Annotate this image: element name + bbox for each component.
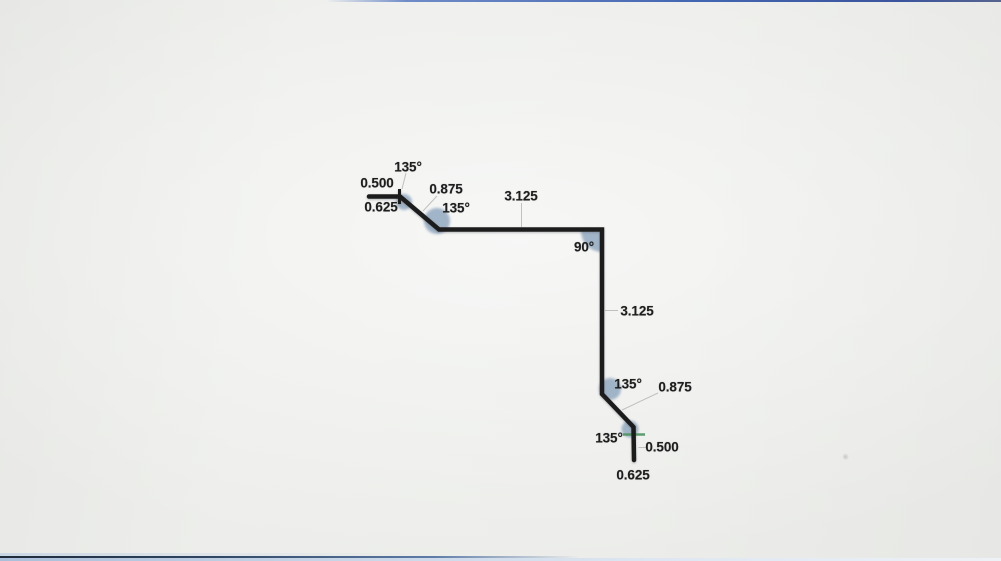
label-len-0500-start: 0.500 [360, 176, 393, 191]
screen-photo-canvas: 135° 0.500 0.875 0.625 135° 3.125 90° 3.… [0, 0, 1001, 561]
label-len-0875-top: 0.875 [429, 182, 462, 197]
leader-angle-135-a [402, 173, 406, 189]
profile-path-group [369, 189, 634, 460]
leader-len-0875-bottom [622, 393, 658, 410]
label-angle-135-d: 135° [595, 431, 623, 446]
label-len-0500-end: 0.500 [645, 440, 678, 455]
profile-drawing [0, 0, 1001, 561]
label-angle-135-b: 135° [442, 201, 470, 216]
label-len-0625-end: 0.625 [616, 468, 649, 483]
label-len-0875-bottom: 0.875 [658, 380, 691, 395]
label-angle-135-c: 135° [614, 377, 642, 392]
label-len-0625-start: 0.625 [364, 200, 397, 215]
label-angle-90: 90° [574, 240, 594, 255]
label-len-3125-top: 3.125 [504, 189, 537, 204]
label-angle-135-a: 135° [394, 160, 422, 175]
label-len-3125-right: 3.125 [620, 304, 653, 319]
